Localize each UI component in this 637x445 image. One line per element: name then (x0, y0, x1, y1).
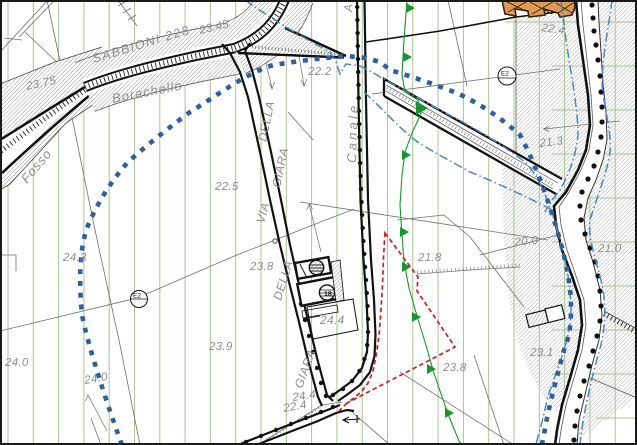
svg-text:21.8: 21.8 (417, 252, 442, 264)
svg-text:23.1: 23.1 (529, 347, 554, 359)
svg-text:22.5: 22.5 (214, 181, 239, 193)
svg-text:23.8: 23.8 (249, 261, 274, 273)
svg-text:24.0: 24.0 (4, 357, 29, 369)
svg-text:E2: E2 (133, 293, 141, 300)
svg-text:E2: E2 (501, 71, 509, 78)
svg-text:A: A (343, 4, 355, 13)
svg-text:18: 18 (324, 291, 332, 298)
svg-text:Canale: Canale (344, 102, 361, 163)
svg-text:24.3: 24.3 (62, 252, 87, 264)
svg-text:21.0: 21.0 (597, 243, 622, 255)
svg-text:23.8: 23.8 (442, 362, 467, 374)
svg-text:22.2: 22.2 (307, 66, 332, 78)
svg-text:23.9: 23.9 (208, 341, 233, 353)
svg-text:24.4: 24.4 (319, 313, 345, 327)
